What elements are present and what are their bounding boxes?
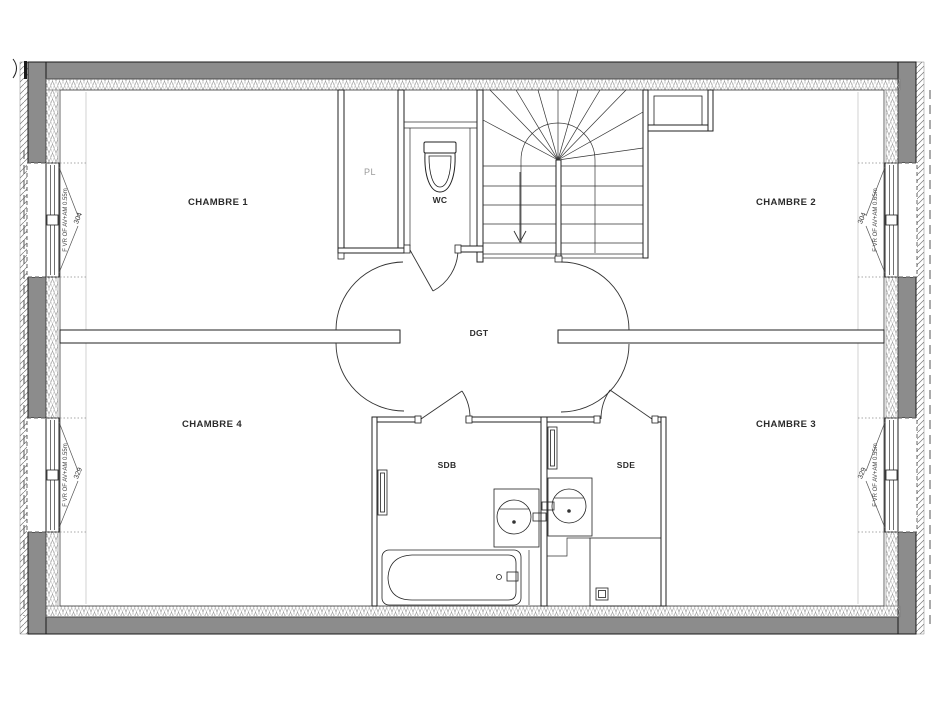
- sde-sink: [552, 489, 586, 523]
- window-dim-bottom-left: 329: [73, 467, 84, 481]
- window-spec-top-right: F VR OF AV+AM 0.65m: [873, 188, 879, 251]
- label-dgt: DGT: [470, 328, 489, 338]
- window-top-left: [46, 163, 59, 277]
- label-chambre2: CHAMBRE 2: [756, 197, 816, 208]
- floor-plan-svg: F VR OF AV+AM 0.55m 304 F VR OF AV+AM 0.…: [0, 0, 940, 705]
- floor-plan-page: F VR OF AV+AM 0.55m 304 F VR OF AV+AM 0.…: [0, 0, 940, 705]
- room-labels: CHAMBRE 1 CHAMBRE 2 CHAMBRE 3 CHAMBRE 4 …: [182, 167, 816, 470]
- stair-winder-fan: [483, 90, 643, 160]
- window-bottom-left: [46, 418, 59, 532]
- bathtub-drain: [497, 575, 502, 580]
- label-sde: SDE: [617, 460, 635, 470]
- window-bottom-right: [885, 418, 898, 532]
- duct-box: [654, 96, 702, 125]
- bathtub: [382, 550, 521, 605]
- window-dim-bottom-right: 329: [857, 467, 868, 481]
- sde-shower-area: [590, 538, 661, 606]
- door-arc-sdb: [462, 391, 470, 419]
- wc-room: [404, 122, 477, 246]
- window-spec-top-left: F VR OF AV+AM 0.55m: [63, 188, 69, 251]
- door-leaf-wc: [410, 250, 433, 291]
- staircase: [483, 90, 643, 258]
- exterior-hatch: [20, 62, 924, 634]
- sdb-vanity: [494, 489, 539, 547]
- door-arc-chambre2: [561, 262, 629, 330]
- label-chambre3: CHAMBRE 3: [756, 419, 816, 430]
- stair-down-arrow: [514, 172, 526, 242]
- insulation-strips: [46, 79, 900, 617]
- door-arc-chambre3: [561, 344, 629, 412]
- sdb-fixtures: [378, 470, 546, 605]
- door-arc-chambre1: [336, 262, 403, 330]
- label-wc: WC: [433, 195, 448, 205]
- toilet: [424, 142, 456, 192]
- sdb-sink: [497, 500, 531, 534]
- window-dim-top-left: 304: [73, 212, 84, 226]
- sde-vanity: [548, 478, 592, 536]
- label-pl: PL: [364, 167, 376, 177]
- label-sdb: SDB: [438, 460, 457, 470]
- window-spec-bottom-right: F VR OF AV+AM 0.55m: [873, 443, 879, 506]
- window-spec-bottom-left: F VR OF AV+AM 0.55m: [63, 443, 69, 506]
- shutter-boxes: [27, 163, 917, 532]
- sde-fixtures: [542, 427, 661, 606]
- boundary-lines: [13, 59, 930, 630]
- label-chambre4: CHAMBRE 4: [182, 419, 242, 430]
- label-chambre1: CHAMBRE 1: [188, 197, 248, 208]
- sdb-radiator: [378, 470, 387, 515]
- door-arc-sde: [601, 390, 610, 419]
- sde-drain: [596, 588, 608, 600]
- door-arc-wc: [433, 250, 458, 291]
- sde-radiator: [548, 427, 557, 469]
- door-arc-chambre4: [336, 343, 404, 411]
- window-top-right: [885, 163, 898, 277]
- window-dim-top-right: 304: [857, 212, 868, 226]
- partition-walls: [60, 90, 884, 606]
- door-leaf-sdb: [421, 391, 462, 419]
- interior-boundary: [60, 90, 884, 606]
- window-annotations: F VR OF AV+AM 0.55m 304 F VR OF AV+AM 0.…: [46, 163, 898, 532]
- door-leaf-sde: [610, 390, 652, 419]
- outer-walls: [28, 62, 916, 634]
- corner-mark: [13, 59, 17, 78]
- dimension-guides: [86, 92, 858, 604]
